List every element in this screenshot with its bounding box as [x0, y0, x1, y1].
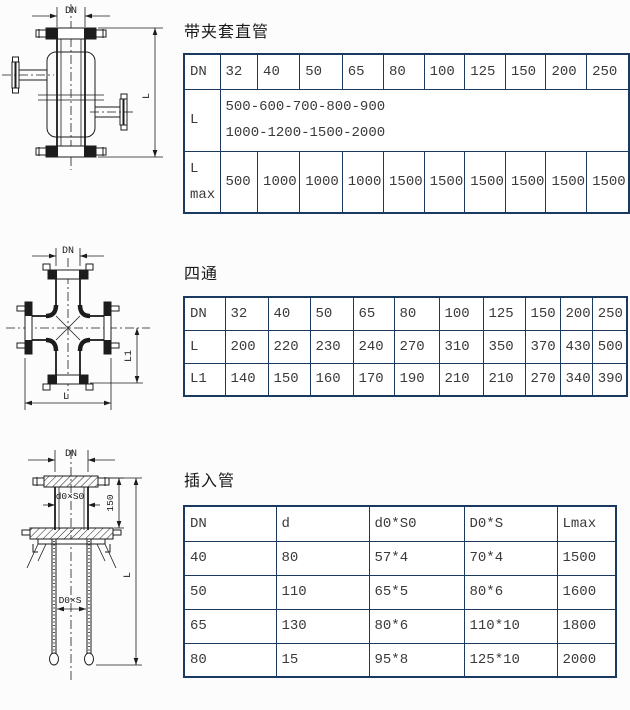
insert-table: DN d d0*S0 D0*S Lmax 40 80 57*4 70*4 150…: [183, 505, 617, 678]
table-cell: 80: [384, 54, 425, 89]
table-cell: 125*10: [464, 643, 557, 677]
table-cell: 1000: [258, 151, 300, 213]
table-cell: 1500: [384, 151, 425, 213]
table-cell: L max: [184, 151, 220, 213]
drawing-jacketed-pipe: DN: [0, 0, 175, 238]
table-cell: 210: [483, 363, 525, 396]
section-title-insert: 插入管: [184, 467, 235, 491]
table-cell: 110*10: [464, 609, 557, 643]
table-cell: 80: [394, 297, 439, 330]
table-cell: 350: [483, 330, 525, 363]
table-cell: 140: [225, 363, 268, 396]
table-cell: 390: [592, 363, 627, 396]
d0s0-label: d0×S0: [56, 491, 85, 502]
mounting-flange: [22, 528, 121, 568]
table-cell: 125: [483, 297, 525, 330]
dim-150-label: 150: [105, 494, 116, 511]
table-cell: 40: [184, 541, 276, 575]
l1-label: L1: [124, 350, 135, 362]
table-cell: 50: [184, 575, 276, 609]
table-row: 80 15 95*8 125*10 2000: [184, 643, 616, 677]
jacketed-table: DN 32 40 50 65 80 100 125 150 200 250 L …: [183, 53, 630, 214]
l-label: L: [142, 93, 153, 99]
table-cell: 65*5: [369, 575, 464, 609]
table-cell: 200: [225, 330, 268, 363]
table-row: 50 110 65*5 80*6 1600: [184, 575, 616, 609]
table-cell: 170: [353, 363, 394, 396]
table-cell: 65: [353, 297, 394, 330]
table-cell: 160: [310, 363, 353, 396]
table-cell: L: [184, 89, 220, 151]
dn-dimension: DN: [28, 449, 115, 472]
table-row: DN 32 40 50 65 80 100 125 150 200 250: [184, 54, 629, 89]
dn-label: DN: [65, 449, 77, 460]
table-cell: 80: [276, 541, 369, 575]
table-cell: D0*S: [464, 506, 557, 541]
table-cell: 15: [276, 643, 369, 677]
table-cell: 150: [505, 54, 546, 89]
table-cell: 40: [268, 297, 310, 330]
table-cell: 100: [424, 54, 465, 89]
drawing-cross: DN: [0, 240, 180, 435]
table-cell: 190: [394, 363, 439, 396]
table-cell: 50: [310, 297, 353, 330]
l1-dimension: L1: [90, 328, 143, 383]
table-cell: 80*6: [464, 575, 557, 609]
table-cell: 370: [525, 330, 560, 363]
table-cell: 150: [525, 297, 560, 330]
table-cell: 340: [560, 363, 592, 396]
table-cell: 500-600-700-800-900 1000-1200-1500-2000: [220, 89, 629, 151]
table-cell: 1000: [300, 151, 343, 213]
table-row: 40 80 57*4 70*4 1500: [184, 541, 616, 575]
table-cell: 1500: [557, 541, 616, 575]
table-cell: 1500: [424, 151, 465, 213]
table-cell: 95*8: [369, 643, 464, 677]
table-cell: 100: [439, 297, 483, 330]
spec-sheet-page: DN: [0, 0, 630, 710]
table-cell: L1: [184, 363, 225, 396]
right-nozzle: [90, 94, 136, 130]
table-cell: 430: [560, 330, 592, 363]
d0s0-dimension: d0×S0: [43, 491, 100, 505]
l-label: L: [63, 392, 69, 403]
table-cell: DN: [184, 54, 220, 89]
l-dimension: L: [98, 28, 163, 157]
l-label: L: [123, 572, 134, 578]
dn-label: DN: [62, 246, 74, 257]
table-cell: 250: [587, 54, 629, 89]
table-row: DN 32 40 50 65 80 100 125 150 200 250: [184, 297, 627, 330]
table-cell: 32: [220, 54, 258, 89]
table-row: L max 500 1000 1000 1000 1500 1500 1500 …: [184, 151, 629, 213]
table-cell: 1800: [557, 609, 616, 643]
l-range-line2: 1000-1200-1500-2000: [226, 120, 628, 146]
top-flange: [33, 476, 109, 487]
dn-label: DN: [65, 6, 77, 17]
table-cell: 200: [560, 297, 592, 330]
table-row: DN d d0*S0 D0*S Lmax: [184, 506, 616, 541]
l-range-line1: 500-600-700-800-900: [226, 94, 628, 120]
lmax-label-line2: max: [190, 182, 219, 208]
table-cell: 50: [300, 54, 343, 89]
table-cell: 270: [394, 330, 439, 363]
table-cell: 40: [258, 54, 300, 89]
table-cell: 310: [439, 330, 483, 363]
table-cell: 1500: [505, 151, 546, 213]
table-cell: 1500: [587, 151, 629, 213]
table-cell: 1000: [342, 151, 383, 213]
table-cell: 250: [592, 297, 627, 330]
table-cell: 1500: [546, 151, 587, 213]
table-cell: 1500: [465, 151, 506, 213]
drawing-insert-pipe: DN d0×S0: [0, 440, 180, 710]
d0s-label: D0×S: [59, 595, 82, 606]
table-cell: 2000: [557, 643, 616, 677]
lmax-label-line1: L: [190, 156, 219, 182]
section-title-jacketed: 带夹套直管: [184, 18, 269, 42]
table-cell: 125: [465, 54, 506, 89]
table-cell: 500: [220, 151, 258, 213]
table-cell: d0*S0: [369, 506, 464, 541]
bottom-flange: [36, 146, 106, 157]
table-cell: 70*4: [464, 541, 557, 575]
cross-table: DN 32 40 50 65 80 100 125 150 200 250 L …: [183, 296, 628, 397]
section-title-cross: 四通: [184, 260, 218, 284]
table-cell: 200: [546, 54, 587, 89]
table-cell: Lmax: [557, 506, 616, 541]
d0s-dimension: D0×S: [57, 595, 86, 609]
table-cell: 1600: [557, 575, 616, 609]
table-cell: d: [276, 506, 369, 541]
table-row: 65 130 80*6 110*10 1800: [184, 609, 616, 643]
table-cell: 230: [310, 330, 353, 363]
table-row: L1 140 150 160 170 190 210 210 270 340 3…: [184, 363, 627, 396]
table-cell: 65: [342, 54, 383, 89]
table-cell: 57*4: [369, 541, 464, 575]
table-cell: DN: [184, 297, 225, 330]
table-cell: 80: [184, 643, 276, 677]
table-cell: 240: [353, 330, 394, 363]
table-cell: 80*6: [369, 609, 464, 643]
table-cell: 110: [276, 575, 369, 609]
table-cell: 270: [525, 363, 560, 396]
table-cell: DN: [184, 506, 276, 541]
table-row: L 500-600-700-800-900 1000-1200-1500-200…: [184, 89, 629, 151]
table-cell: L: [184, 330, 225, 363]
left-nozzle: [2, 57, 54, 93]
table-cell: 32: [225, 297, 268, 330]
top-flange: [36, 28, 106, 39]
table-cell: 500: [592, 330, 627, 363]
table-cell: 150: [268, 363, 310, 396]
table-cell: 65: [184, 609, 276, 643]
table-cell: 130: [276, 609, 369, 643]
table-row: L 200 220 230 240 270 310 350 370 430 50…: [184, 330, 627, 363]
table-cell: 220: [268, 330, 310, 363]
table-cell: 210: [439, 363, 483, 396]
